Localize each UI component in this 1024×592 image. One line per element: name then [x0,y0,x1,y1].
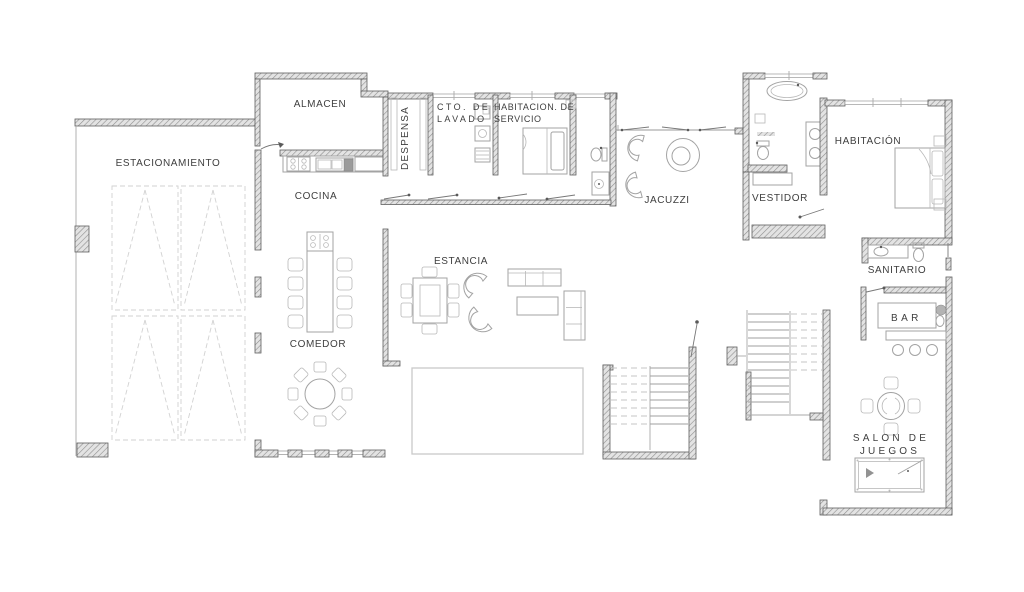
sink-icon [868,245,908,258]
wall [735,128,743,134]
bar-stool [893,345,904,356]
wall [823,508,952,515]
wall-cabinet [755,114,765,123]
wall [255,73,367,79]
closet-shelf [753,173,792,185]
window-mullion [255,333,261,353]
sliding-door-leaves [384,194,575,201]
wall [610,93,616,206]
island-chairs [288,258,352,328]
toilet-icon [913,243,924,262]
wall [810,413,823,420]
window-mullion [338,450,352,457]
estancia-table [401,267,459,334]
wall [743,73,765,79]
wall [689,347,696,459]
window [510,94,555,98]
label-comedor: COMEDOR [290,339,346,350]
wall [746,372,751,420]
room-estacionamiento [75,119,258,457]
window-mullion [315,450,329,457]
service-bathroom [591,147,609,195]
label-servicio-2: SERVICIO [494,114,542,124]
label-jacuzzi: JACUZZI [644,195,689,206]
wall [603,365,610,457]
door-jamb [946,258,951,270]
kitchen-cabinet [355,157,383,171]
coffee-table [517,297,558,315]
stair-steps [611,368,688,424]
bar-stool [927,345,938,356]
bathtub-icon [767,82,807,101]
toilet-icon [756,141,769,160]
wall [361,91,388,97]
wall [823,310,830,460]
label-habitacion: HABITACIÓN [835,134,901,147]
label-salon-2: JUEGOS [860,446,920,457]
pantry-shelf [391,98,397,170]
room-jacuzzi [616,125,743,201]
wall [383,361,400,366]
wall [862,238,868,263]
wall [748,165,787,172]
jacuzzi-tub-icon [667,139,700,172]
wall [862,238,952,245]
staircase-right [727,310,823,420]
wall [884,287,946,293]
window-mullion [288,450,302,457]
wall [75,119,258,126]
armchair-icon [463,307,492,337]
wall [428,95,433,175]
label-lavado-2: LAVADO [437,114,487,124]
label-vestidor: VESTIDOR [752,193,808,204]
wall [475,93,510,99]
wall-column [77,443,108,457]
parking-bay-marks [112,186,245,440]
wall [255,150,261,250]
wall [363,450,385,457]
room-salon-juegos [820,310,952,515]
wall [255,79,260,146]
closet-hatch [752,225,825,238]
wall [820,98,827,195]
label-sanitario: SANITARIO [868,265,927,276]
wall [861,287,866,340]
window [845,101,928,105]
label-cocina: COCINA [295,191,338,202]
billiard-table-icon [855,458,924,492]
lounge-chair-icon [625,132,644,160]
sink-icon [316,158,353,171]
window-mullion [255,277,261,297]
staircase-left [603,320,699,459]
label-servicio-1: HABITACION. DE [494,102,574,112]
bed-icon [895,136,946,210]
room-labels: ESTACIONAMIENTO ALMACEN DESPENSA CTO. DE… [116,99,929,457]
side-sofa-icon [564,291,585,340]
label-despensa: DESPENSA [400,106,411,170]
label-estacionamiento: ESTACIONAMIENTO [116,158,221,169]
pantry-shelf [420,98,426,170]
armchair-icon [458,267,487,297]
wall [255,450,278,457]
label-bar: B A R [891,313,919,324]
wall [383,97,388,176]
bar-sink [936,305,946,315]
floor-plan-canvas: ESTACIONAMIENTO ALMACEN DESPENSA CTO. DE… [0,0,1024,592]
label-estancia: ESTANCIA [434,256,488,267]
kitchen-island [288,232,352,332]
toilet-icon [591,147,607,161]
room-master-bath [743,71,827,172]
window [574,94,605,98]
bar-stool [910,345,921,356]
wall [813,73,827,79]
lounge-chair-icon [623,172,642,200]
shower-icon [592,172,609,195]
wall [945,100,952,242]
wall [743,79,749,172]
stove-icon [287,157,310,171]
vestidor-door-leaf [800,209,824,217]
corridor-glass-wall [381,200,611,205]
wall [743,172,749,240]
elevator-column [727,347,737,365]
room-habitacion [825,98,952,245]
round-dining-table [288,362,352,426]
sofa-icon [508,269,561,286]
terrace-rug [412,368,583,454]
label-almacen: ALMACEN [294,99,347,110]
wall [603,452,695,459]
wall [825,100,845,106]
wall [280,150,385,156]
wall-column [75,226,89,252]
label-lavado-1: CTO. DE [437,102,490,112]
bath-mat [757,132,775,136]
almacen-door-swing [261,145,282,150]
wall [946,277,952,515]
wall [383,229,388,366]
room-cocina [280,150,385,172]
game-table-icon [861,377,920,435]
bar-lower-counter [886,331,946,340]
stair-steps [748,314,822,402]
room-almacen [255,73,388,149]
label-salon-1: SALON DE [853,433,929,444]
